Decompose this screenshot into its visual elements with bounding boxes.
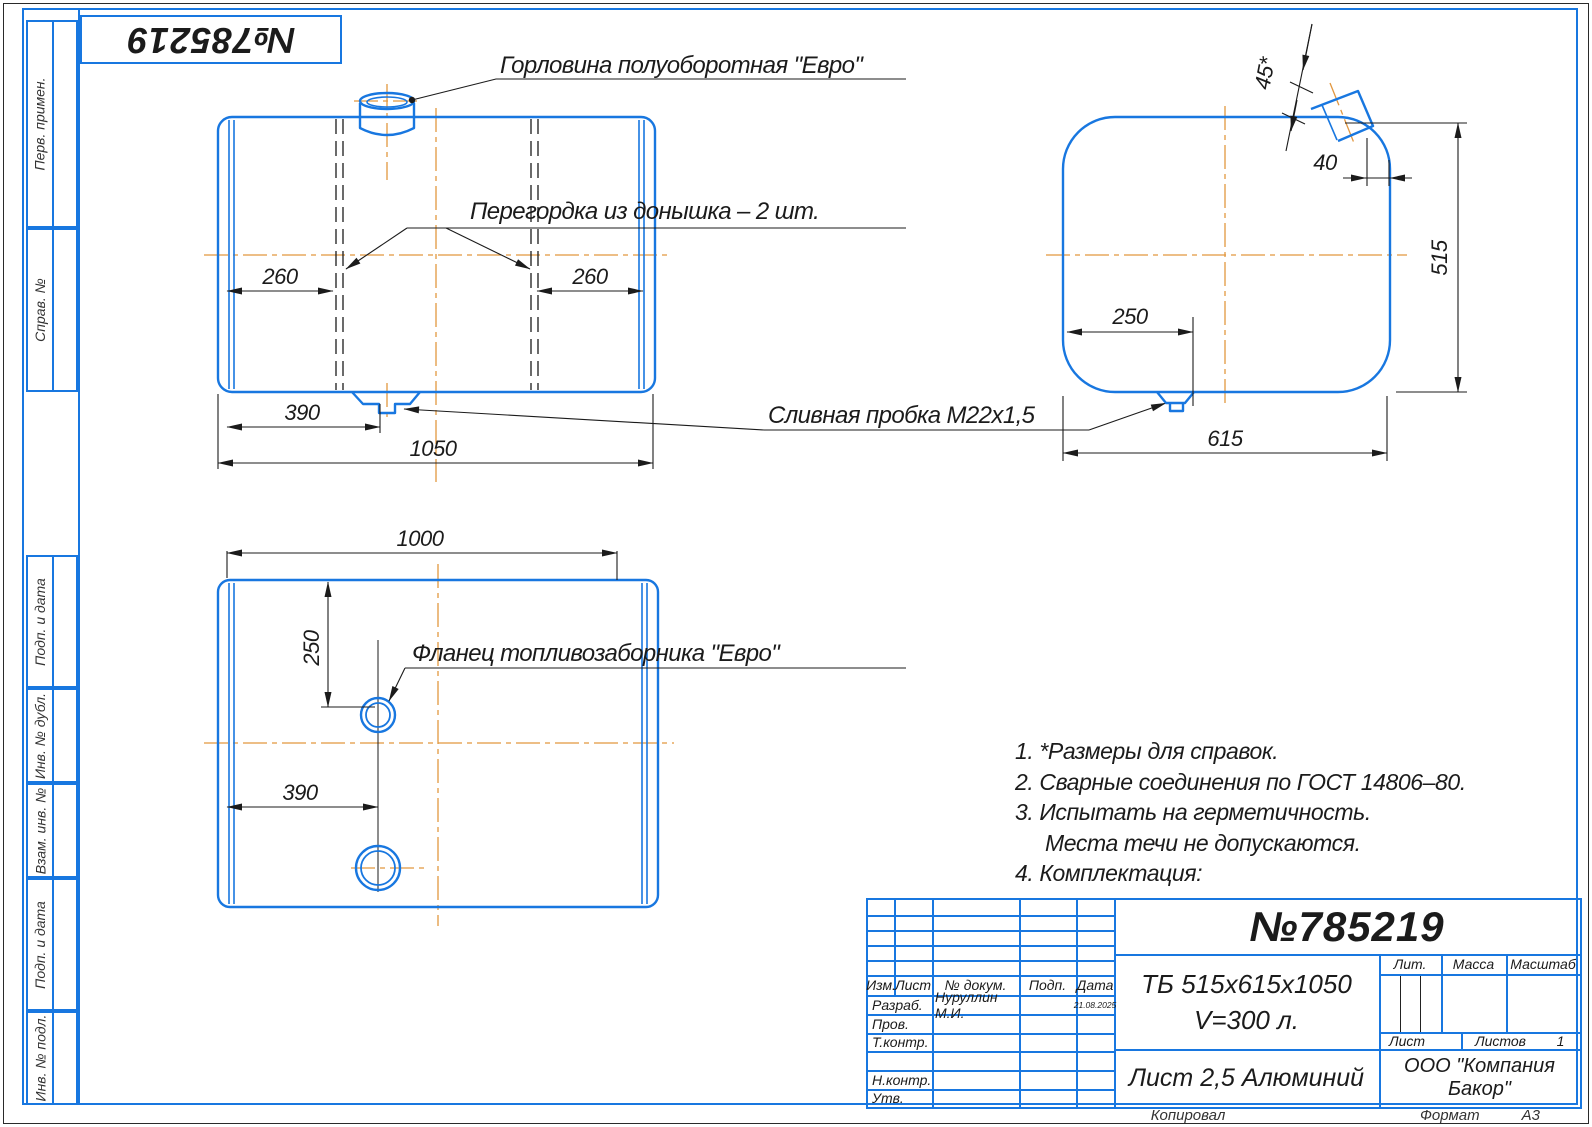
tb-line — [868, 1051, 1116, 1053]
footer-copied: Копировал — [1108, 1107, 1268, 1124]
tb-lit-subline — [1420, 974, 1421, 1032]
side-view: 45* 40 515 250 615 — [1046, 24, 1467, 461]
footer-format-value: А3 — [1522, 1107, 1540, 1124]
tb-row-utv: Утв. — [868, 1089, 936, 1107]
tb-designation-line1: ТБ 515х615х1050 — [1141, 966, 1352, 1002]
tb-sheet-label: Лист — [1379, 1032, 1471, 1049]
side-drain-recess — [1157, 392, 1194, 403]
dim-260-right: 260 — [571, 264, 608, 289]
dim-1000: 1000 — [397, 526, 445, 551]
callout-drain-plug: Сливная пробка М22х1,5 — [768, 402, 1036, 429]
tb-designation: ТБ 515х615х1050 V=300 л. — [1114, 954, 1379, 1049]
tb-razrab-name: Нуруллин М.И. — [932, 995, 1022, 1014]
dim-250-side: 250 — [1111, 304, 1148, 329]
note-line: 4. Комплектация: — [1015, 858, 1590, 889]
tb-row-tkontr: Т.контр. — [868, 1033, 936, 1051]
tb-designation-line2: V=300 л. — [1194, 1002, 1299, 1038]
note-line: 1. *Размеры для справок. — [1015, 736, 1590, 767]
tb-line — [868, 930, 1116, 932]
tb-sheets-value: 1 — [1541, 1032, 1580, 1049]
dim-390-front: 390 — [284, 400, 320, 425]
callout-fuel-flange: Фланец топливозаборника "Евро" — [412, 640, 781, 667]
bottom-centerlines — [204, 564, 674, 926]
side-tank-body — [1063, 91, 1390, 411]
note-line: 2. Сварные соединения по ГОСТ 14806–80. — [1015, 767, 1590, 798]
tb-row-nkontr: Н.контр. — [868, 1070, 936, 1089]
tb-header-izm: Изм. — [868, 975, 894, 995]
title-block: Изм. Лист № докум. Дата Подп. Разраб. Ну… — [866, 898, 1582, 1109]
tb-line — [868, 945, 1116, 947]
bottom-dimension-lines — [227, 551, 906, 807]
tb-header-sign: Подп. — [1019, 975, 1076, 995]
dim-515: 515 — [1427, 239, 1452, 275]
footer-format-label: Формат — [1420, 1107, 1480, 1124]
technical-notes: 1. *Размеры для справок. 2. Сварные соед… — [1015, 736, 1590, 889]
dim-390-bottom: 390 — [282, 780, 318, 805]
tb-row-prov: Пров. — [868, 1014, 936, 1033]
callout-baffle: Перегордка из донышка – 2 шт. — [470, 198, 819, 225]
tb-line — [1379, 974, 1580, 976]
dim-40: 40 — [1313, 150, 1338, 175]
tb-company: ООО "Компания Бакор" — [1379, 1049, 1580, 1107]
tb-header-list: Лист — [894, 975, 932, 995]
tb-header-mass: Масса — [1441, 954, 1506, 974]
tb-row-razrab: Разраб. — [868, 995, 936, 1014]
dim-250-bottom: 250 — [299, 629, 324, 666]
side-drain-plug — [1170, 403, 1183, 411]
note-line: Места течи не допускаются. — [1045, 828, 1590, 859]
dim-45deg: 45* — [1249, 54, 1280, 92]
tb-header-scale: Масштаб — [1506, 954, 1580, 974]
dim-1050: 1050 — [410, 436, 458, 461]
note-line: 3. Испытать на герметичность. — [1015, 797, 1590, 828]
bottom-view: 1000 250 390 Фланец топливозаборника "Ев… — [204, 526, 906, 926]
callout-filler-neck: Горловина полуоборотная "Евро" — [500, 52, 864, 79]
side-centerlines — [1046, 83, 1407, 404]
tb-line — [868, 915, 1116, 917]
tb-lit-subline — [1400, 974, 1401, 1032]
tb-razrab-date: 21.08.2025 — [1076, 995, 1114, 1014]
front-view: 260 260 390 1050 Горловина полуоборотная… — [204, 52, 1166, 482]
footer-format: Формат А3 — [1420, 1107, 1540, 1124]
tb-doc-number: №785219 — [1114, 900, 1580, 954]
drawing-sheet: Перв. примен. Справ. № Подп. и дата Инв.… — [0, 0, 1592, 1127]
tb-header-lit: Лит. — [1379, 954, 1441, 974]
tb-line — [868, 960, 1116, 962]
tb-header-date: Дата — [1076, 975, 1114, 995]
tb-material: Лист 2,5 Алюминий — [1114, 1049, 1379, 1107]
dim-615: 615 — [1207, 426, 1243, 451]
dim-260-left: 260 — [261, 264, 298, 289]
